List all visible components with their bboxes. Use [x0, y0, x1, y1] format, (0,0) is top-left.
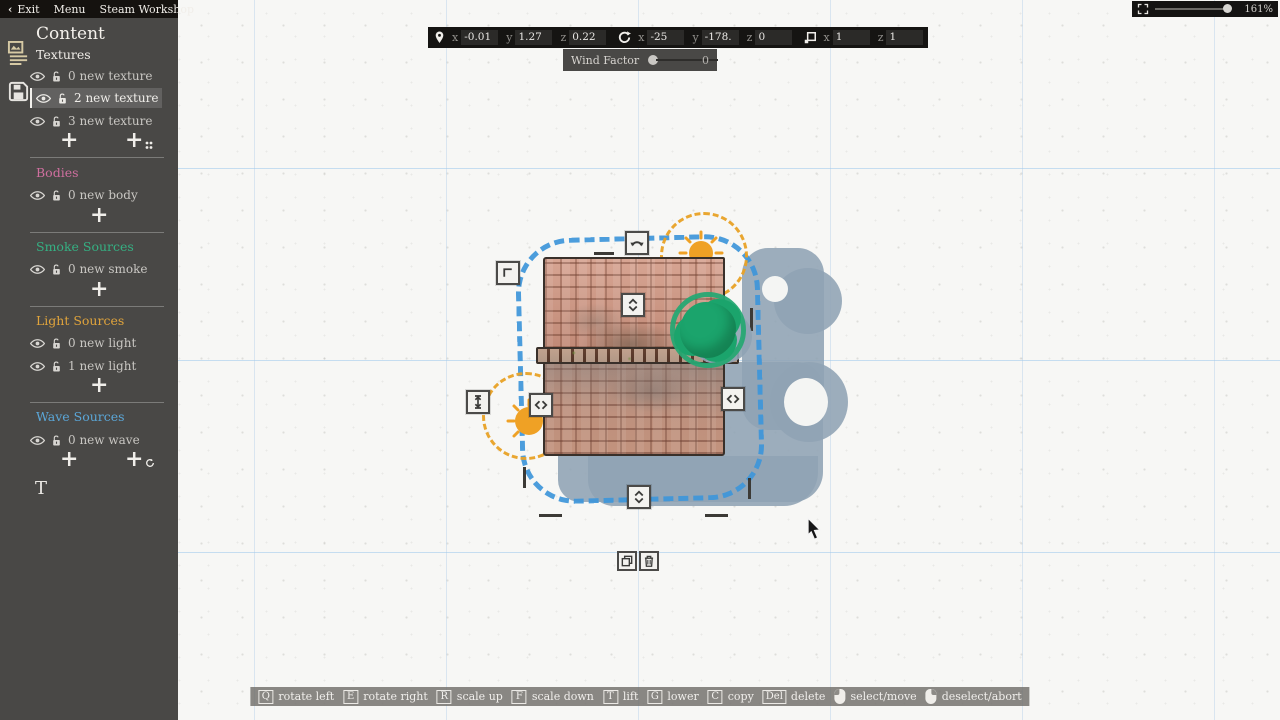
section-wave-sources: Wave Sources	[36, 409, 125, 424]
selection-corner-dash	[539, 514, 562, 517]
texture-row-label[interactable]: 2 new texture	[74, 91, 158, 105]
save-icon[interactable]	[7, 80, 30, 103]
scale-vertical-handle-bottom[interactable]	[627, 485, 651, 509]
keycap-g: G	[647, 690, 662, 704]
corner-bracket-icon	[499, 264, 517, 282]
chevrons-vertical-icon	[624, 296, 642, 314]
axis-label-z: z	[878, 31, 884, 44]
add-texture-button[interactable]: +	[60, 131, 78, 149]
keycap-e: E	[343, 690, 358, 704]
axis-label-z: z	[560, 31, 566, 44]
texture-row-label[interactable]: 0 new texture	[68, 69, 152, 83]
zoom-level-value: 161%	[1244, 4, 1273, 15]
selection-corner-dash	[523, 467, 526, 488]
axis-label-x: x	[452, 31, 458, 44]
selection-corner-dash	[594, 252, 614, 255]
light-row[interactable]: 0 new light	[30, 333, 162, 353]
text-tool-button[interactable]: T	[35, 478, 47, 499]
mouse-right-click-icon	[926, 689, 937, 704]
selection-corner-dash	[705, 514, 728, 517]
duplicate-button[interactable]	[617, 551, 637, 571]
eye-icon[interactable]	[30, 338, 45, 349]
eye-icon[interactable]	[36, 93, 51, 104]
add-wave-circular-button[interactable]: +	[125, 450, 155, 468]
top-menu-bar: ‹ Exit Menu Steam Workshop	[0, 0, 178, 18]
keycap-q: Q	[258, 690, 273, 704]
rotate-handle[interactable]	[625, 231, 649, 255]
lift-arrows-icon	[469, 393, 487, 411]
add-light-button[interactable]: +	[90, 376, 108, 394]
axis-label-x: x	[823, 31, 829, 44]
position-y-field[interactable]: 1.27	[515, 30, 552, 45]
texture-row[interactable]: 0 new texture	[30, 66, 162, 86]
eye-icon[interactable]	[30, 190, 45, 201]
roof-texture-bottom[interactable]	[543, 362, 725, 456]
hotkey-action: rotate left	[278, 690, 334, 703]
position-pin-icon	[433, 30, 446, 45]
circular-arrow-icon	[145, 458, 155, 468]
content-sidebar: Content Textures 0 new texture 2 new tex…	[0, 18, 178, 720]
rotate-icon	[628, 234, 646, 252]
rotation-x-field[interactable]: -25	[647, 30, 684, 45]
menu-item-steam-workshop[interactable]: Steam Workshop	[100, 3, 194, 16]
dots-icon	[145, 140, 153, 149]
hotkey-action: rotate right	[363, 690, 428, 703]
menu-item-menu[interactable]: Menu	[54, 3, 86, 16]
transform-toolbar: x -0.01 y 1.27 z 0.22 x -25 y -178. z 0 …	[428, 27, 928, 48]
body-row-label[interactable]: 0 new body	[68, 188, 138, 202]
axis-label-y: y	[692, 31, 698, 44]
hotkey-action: scale down	[532, 690, 594, 703]
mouse-left-click-icon	[834, 689, 845, 704]
unlock-icon[interactable]	[51, 263, 62, 276]
smoke-row-label[interactable]: 0 new smoke	[68, 262, 148, 276]
wind-factor-panel: Wind Factor 0	[563, 49, 717, 71]
shadow-hole	[762, 276, 788, 302]
wave-row-label[interactable]: 0 new wave	[68, 433, 140, 447]
rotation-icon	[617, 30, 632, 45]
wind-factor-label: Wind Factor	[571, 54, 639, 67]
axis-label-x: x	[638, 31, 644, 44]
scale-icon	[803, 31, 817, 45]
unlock-icon[interactable]	[51, 360, 62, 373]
divider	[30, 306, 164, 307]
hotkey-action: delete	[791, 690, 826, 703]
hotkey-action: copy	[728, 690, 754, 703]
unlock-icon[interactable]	[57, 92, 68, 105]
keycap-c: C	[708, 690, 723, 704]
add-wave-button[interactable]: +	[60, 450, 78, 468]
scale-horizontal-handle-right[interactable]	[721, 387, 745, 411]
divider	[30, 232, 164, 233]
menu-item-exit[interactable]: Exit	[17, 3, 39, 16]
eye-icon[interactable]	[30, 264, 45, 275]
back-arrow-icon[interactable]: ‹	[8, 3, 12, 16]
unlock-icon[interactable]	[51, 434, 62, 447]
zoom-slider-track[interactable]	[1155, 8, 1229, 10]
rotation-z-field[interactable]: 0	[755, 30, 792, 45]
keycap-f: F	[512, 690, 527, 704]
axis-label-z: z	[747, 31, 753, 44]
unlock-icon[interactable]	[51, 70, 62, 83]
axis-label-y: y	[506, 31, 512, 44]
zoom-control: 161%	[1132, 1, 1278, 17]
keycap-r: R	[437, 690, 452, 704]
hotkey-action: lower	[667, 690, 698, 703]
zoom-slider-knob[interactable]	[1223, 4, 1232, 13]
section-smoke-sources: Smoke Sources	[36, 239, 134, 254]
section-light-sources: Light Sources	[36, 313, 124, 328]
duplicate-icon	[620, 554, 634, 568]
add-body-button[interactable]: +	[90, 206, 108, 224]
corner-scale-handle[interactable]	[496, 261, 520, 285]
scale-horizontal-handle-left[interactable]	[529, 393, 553, 417]
add-texture-batch-button[interactable]: +	[125, 131, 153, 149]
hotkey-action: scale up	[457, 690, 503, 703]
eye-icon[interactable]	[30, 116, 45, 127]
mouse-cursor	[806, 517, 823, 543]
trash-icon	[642, 554, 656, 568]
lift-handle[interactable]	[466, 390, 490, 414]
rotation-y-field[interactable]: -178.	[702, 30, 739, 45]
scale-x-field[interactable]: 1	[833, 30, 870, 45]
unlock-icon[interactable]	[51, 189, 62, 202]
section-textures: Textures	[36, 47, 91, 62]
selection-corner-dash	[748, 478, 751, 499]
fit-view-icon[interactable]	[1137, 3, 1149, 15]
hotkey-action: deselect/abort	[942, 690, 1022, 703]
unlock-icon[interactable]	[51, 115, 62, 128]
sidebar-title: Content	[36, 24, 105, 44]
section-bodies: Bodies	[36, 165, 79, 180]
wind-factor-value: 0	[702, 54, 709, 67]
scale-vertical-handle-top[interactable]	[621, 293, 645, 317]
light-row-label[interactable]: 0 new light	[68, 336, 136, 350]
divider	[30, 157, 164, 158]
shadow-hole	[784, 378, 828, 426]
chevrons-vertical-icon	[630, 488, 648, 506]
chevrons-horizontal-icon	[532, 396, 550, 414]
eye-icon[interactable]	[30, 435, 45, 446]
position-z-field[interactable]: 0.22	[569, 30, 606, 45]
eye-icon[interactable]	[30, 71, 45, 82]
chevrons-horizontal-icon	[724, 390, 742, 408]
texture-row-selected[interactable]: 2 new texture	[30, 88, 162, 108]
textures-panel-icon[interactable]	[7, 40, 30, 65]
keycap-t: T	[603, 690, 618, 704]
unlock-icon[interactable]	[51, 337, 62, 350]
hotkey-action: select/move	[850, 690, 916, 703]
building-shadow	[774, 268, 842, 334]
delete-button[interactable]	[639, 551, 659, 571]
light-row-label[interactable]: 1 new light	[68, 359, 136, 373]
eye-icon[interactable]	[30, 361, 45, 372]
hotkey-legend-bar: Qrotate left Erotate right Rscale up Fsc…	[250, 687, 1029, 706]
texture-row-label[interactable]: 3 new texture	[68, 114, 152, 128]
keycap-del: Del	[763, 690, 786, 704]
add-smoke-button[interactable]: +	[90, 280, 108, 298]
position-x-field[interactable]: -0.01	[461, 30, 498, 45]
scale-z-field[interactable]: 1	[886, 30, 923, 45]
divider	[30, 402, 164, 403]
hotkey-action: lift	[623, 690, 639, 703]
